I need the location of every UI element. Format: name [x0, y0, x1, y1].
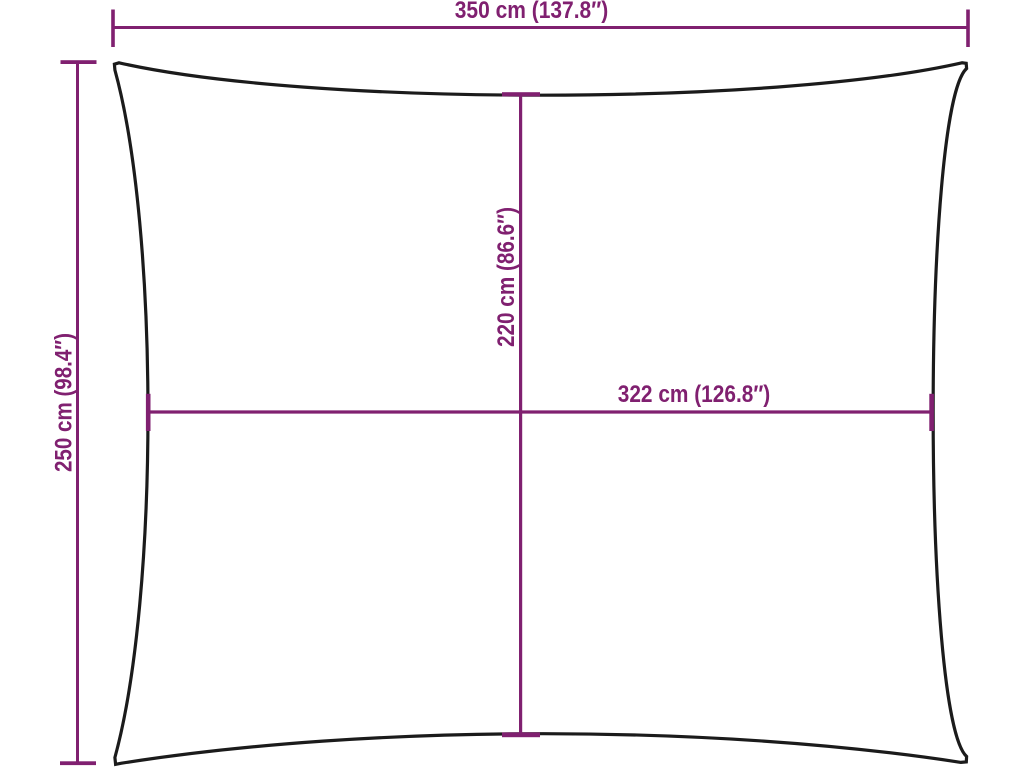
- svg-text:250 cm (98.4″): 250 cm (98.4″): [52, 333, 78, 472]
- svg-text:350 cm (137.8″): 350 cm (137.8″): [455, 0, 609, 24]
- svg-text:322 cm (126.8″): 322 cm (126.8″): [618, 382, 771, 408]
- svg-text:220 cm (86.6″): 220 cm (86.6″): [494, 207, 520, 347]
